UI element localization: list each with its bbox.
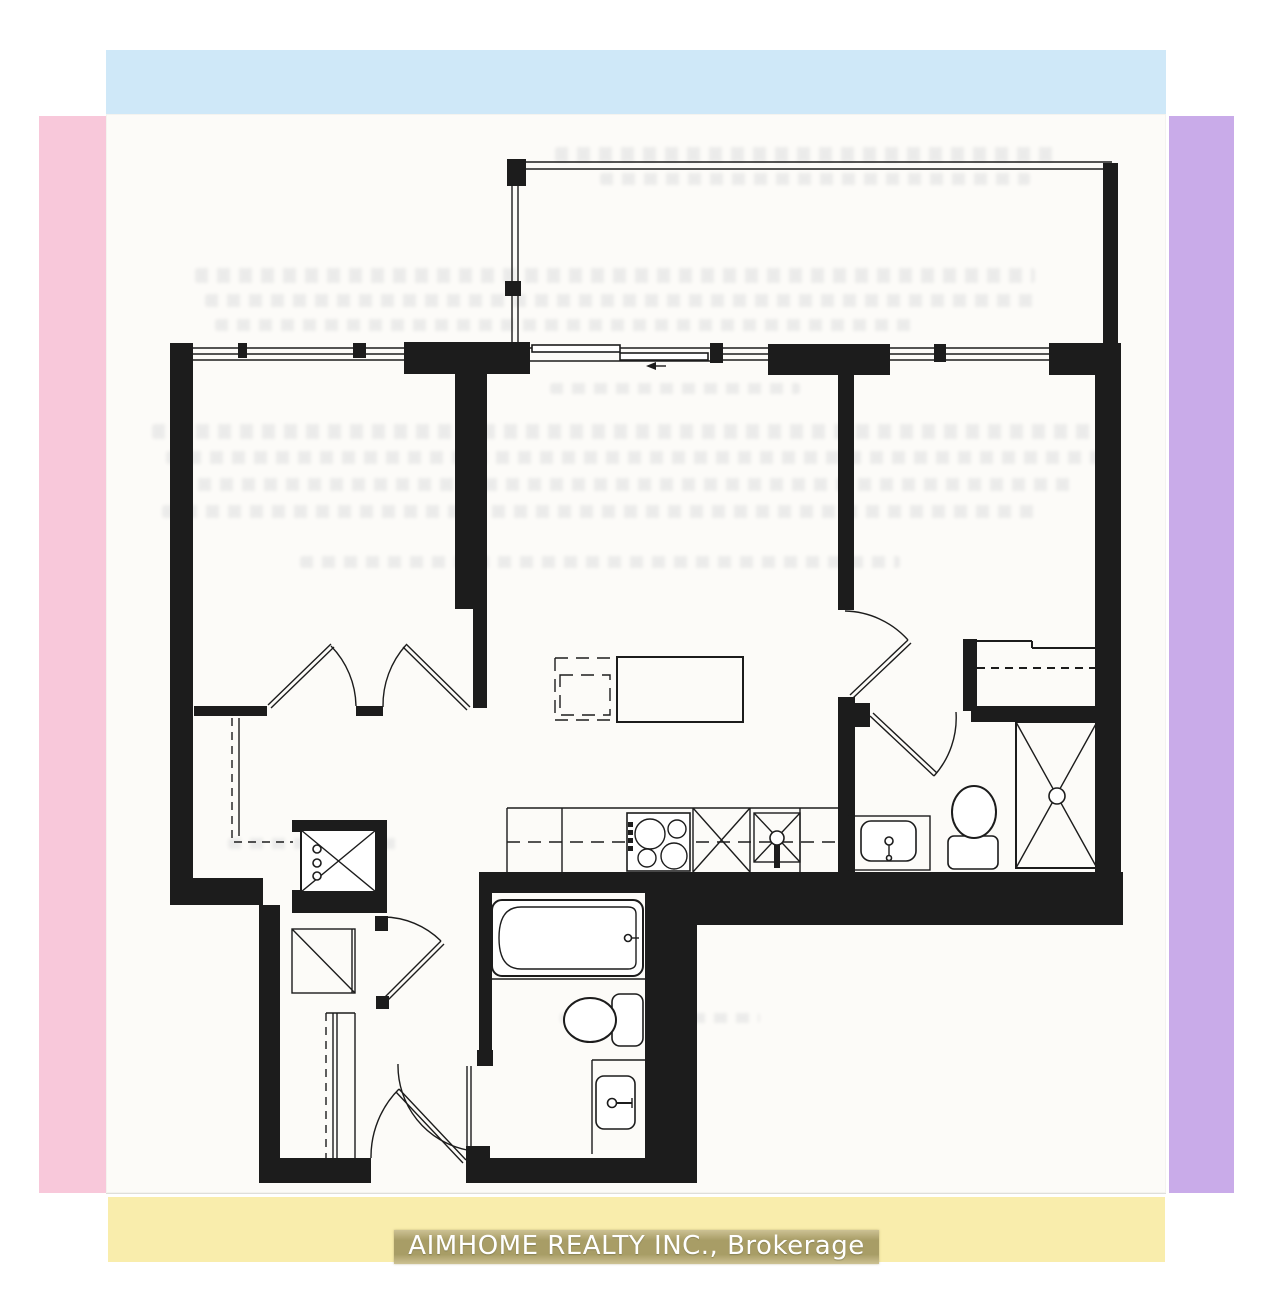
scan-bleed-artifact [600, 173, 1030, 185]
brand-highlight-box: AIMHOME REALTY INC., Brokerage [394, 1230, 878, 1264]
scan-bleed-artifact [195, 268, 1035, 283]
scan-bleed-artifact [300, 556, 900, 568]
floor-plan-paper [106, 114, 1166, 1194]
scan-bleed-artifact [228, 838, 398, 849]
brokerage-name: AIMHOME REALTY INC., Brokerage [408, 1231, 864, 1261]
frame-bar-right [1169, 116, 1234, 1193]
footer-caption-row: AIMHOME REALTY INC., Brokerage [108, 1230, 1165, 1264]
scan-bleed-artifact [176, 478, 1076, 491]
frame-bar-top [106, 50, 1166, 114]
scan-bleed-artifact [205, 294, 1035, 307]
scan-bleed-artifact [162, 505, 1042, 518]
scanned-floor-plan-page: AIMHOME REALTY INC., Brokerage [0, 0, 1273, 1312]
scan-bleed-artifact [215, 319, 915, 331]
scan-bleed-artifact [550, 383, 800, 394]
scan-bleed-artifact [560, 1013, 760, 1023]
scan-bleed-artifact [555, 147, 1055, 162]
scan-bleed-artifact [166, 451, 1106, 464]
scan-bleed-artifact [152, 424, 1102, 439]
frame-bar-left [39, 116, 106, 1193]
